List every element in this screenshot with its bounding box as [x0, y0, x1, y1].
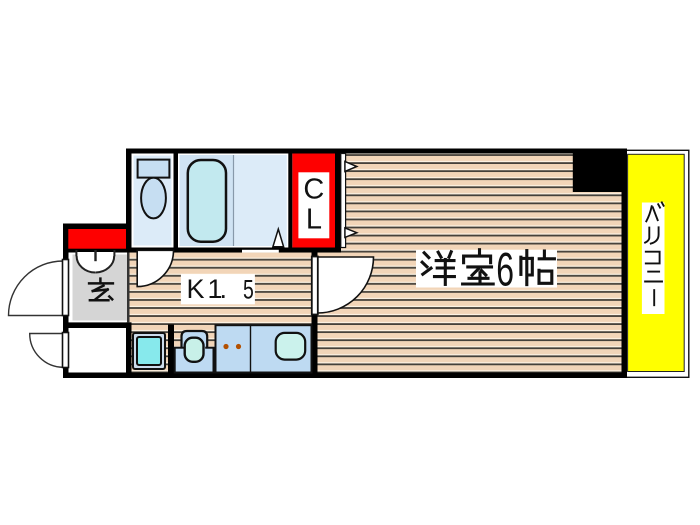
svg-text:.: . [220, 274, 228, 304]
svg-text:L: L [306, 204, 322, 236]
svg-text:6: 6 [496, 244, 514, 297]
svg-text:C: C [303, 174, 324, 206]
svg-text:5: 5 [243, 274, 254, 304]
svg-text:K: K [187, 274, 205, 304]
